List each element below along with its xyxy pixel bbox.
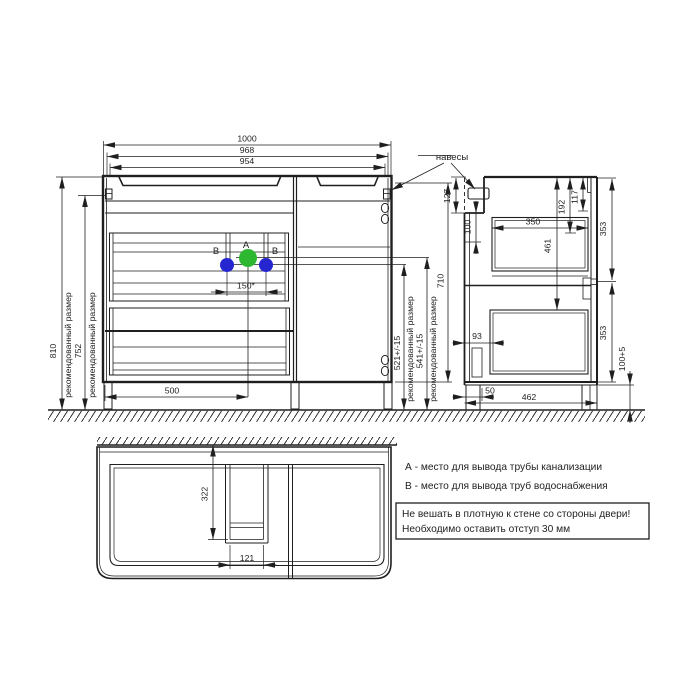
water-point-b-right [259,258,273,272]
svg-text:192: 192 [557,200,567,215]
siphon-cutout [226,465,269,544]
svg-text:353: 353 [598,222,608,237]
bottom-view: 322 121 [97,445,391,579]
svg-text:322: 322 [200,487,210,502]
side-bottom-drawer-box [490,310,588,374]
dim-drain-offset: 500 [105,385,248,401]
svg-text:рекомендованный размер: рекомендованный размер [405,296,415,402]
side-leg-front [582,385,597,410]
svg-text:521+/-15: 521+/-15 [392,336,402,371]
dim-top-offset: 117 [570,178,589,211]
svg-text:рекомендованный размер: рекомендованный размер [63,292,73,398]
side-leg-back [466,385,480,410]
dim-drawer-back-gap: 93 [453,331,505,343]
svg-text:93: 93 [472,331,482,341]
legend: А - место для вывода трубы канализации В… [405,461,608,492]
hangers-callout: навесы [392,152,476,190]
svg-text:541+/-15: 541+/-15 [415,334,425,369]
svg-text:117: 117 [570,190,580,204]
svg-text:954: 954 [240,156,255,166]
hanger-bracket-right [384,189,391,199]
front-cabinet-outline [103,176,392,382]
dim-water-height: 521+/-15 рекомендованный размер [392,265,415,411]
svg-text:1000: 1000 [237,134,256,144]
dim-drawer-depth: 350 [492,217,588,229]
dim-outlet-spacing: 150* [211,281,282,293]
dim-recess-height: 127 [442,177,466,213]
svg-text:968: 968 [240,145,255,155]
svg-text:350: 350 [526,217,541,227]
wall-line-bottom-view [97,437,397,445]
warning-line-1: Не вешать в плотную к стене со стороны д… [402,509,630,520]
wall-hatch [97,437,397,445]
svg-text:810: 810 [48,344,58,359]
side-view: 127 100 350 461 192 117 [442,177,634,423]
dim-drain-height: 541+/-15 рекомендованный размер [415,258,439,411]
vanity-dimension-drawing: A B B 150* 500 1000 968 [0,0,700,700]
door-handle-groove [317,177,378,186]
dim-inner-height: 461 [543,178,558,310]
svg-text:100+5: 100+5 [617,347,627,372]
legend-line-b: В - место для вывода труб водоснабжения [405,480,608,492]
water-point-b-left [220,258,234,272]
door-hinge-bottom [381,355,388,375]
hangers-label: навесы [436,152,469,163]
dim-leg-offset: 50 [453,386,495,402]
dim-upper-front-height: 353 [598,178,616,282]
svg-text:461: 461 [543,239,553,254]
floor-ground-line [48,410,645,422]
warning-note: Не вешать в плотную к стене со стороны д… [396,503,649,539]
front-leg-middle [291,382,299,409]
svg-text:127: 127 [442,189,452,204]
svg-text:50: 50 [485,386,495,396]
svg-text:462: 462 [522,392,537,402]
svg-text:150*: 150* [237,281,255,291]
door-hinge-top [381,203,388,223]
svg-text:рекомендованный размер: рекомендованный размер [87,292,97,398]
bottom-inner-box [110,465,384,566]
hanger-bracket-side [468,188,489,199]
svg-text:121: 121 [240,553,255,563]
legend-line-a: А - место для вывода трубы канализации [405,461,602,473]
dim-lower-front-height: 353 [598,283,616,382]
floor-hatch [48,411,645,422]
svg-text:500: 500 [165,386,180,396]
svg-text:353: 353 [598,326,608,341]
point-b-label-left: B [213,246,219,257]
door-divider [294,176,297,382]
bottom-drawer-box [110,308,290,375]
svg-text:752: 752 [73,344,83,359]
svg-text:710: 710 [436,274,446,289]
front-leg-right [384,382,392,409]
dim-mount-height: 752 рекомендованный размер [73,196,106,411]
warning-line-2: Необходимо оставить отступ 30 мм [402,523,570,535]
svg-text:100: 100 [463,220,473,235]
technical-drawing-page: A B B 150* 500 1000 968 [0,0,700,700]
dim-basin-width: 954 [110,156,385,176]
dim-cutout-from-wall: 322 [200,445,229,540]
front-view: A B B 150* 500 1000 968 [48,134,475,411]
drawer-handle-groove [119,177,281,186]
drain-point-a [239,249,257,267]
point-a-label: A [243,240,250,251]
point-b-label-right: B [272,246,278,257]
dim-top-clearance: 192 [557,178,577,233]
svg-text:рекомендованный размер: рекомендованный размер [428,296,438,402]
